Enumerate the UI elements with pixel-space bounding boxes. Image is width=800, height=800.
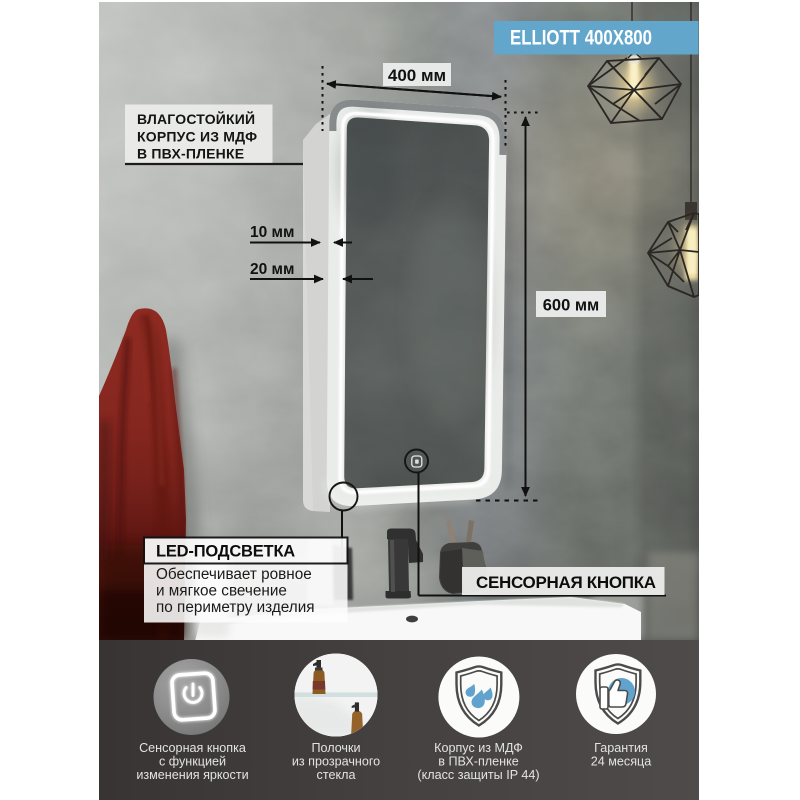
- svg-text:24 месяца: 24 месяца: [591, 755, 652, 769]
- svg-text:в ПВХ-пленке: в ПВХ-пленке: [438, 755, 518, 769]
- svg-text:600 мм: 600 мм: [543, 297, 600, 315]
- svg-text:В ПВХ-ПЛЕНКЕ: В ПВХ-ПЛЕНКЕ: [137, 146, 244, 162]
- svg-text:и мягкое свечение: и мягкое свечение: [156, 583, 287, 600]
- svg-text:Обеспечивает ровное: Обеспечивает ровное: [156, 566, 312, 583]
- svg-text:Полочки: Полочки: [311, 741, 360, 755]
- svg-text:КОРПУС ИЗ МДФ: КОРПУС ИЗ МДФ: [137, 129, 257, 145]
- svg-text:20 мм: 20 мм: [250, 261, 294, 278]
- svg-text:10 мм: 10 мм: [250, 224, 294, 241]
- svg-text:из прозрачного: из прозрачного: [292, 755, 380, 769]
- svg-text:по периметру изделия: по периметру изделия: [156, 599, 315, 616]
- svg-text:с функцией: с функцией: [159, 755, 226, 769]
- svg-text:Сенсорная кнопка: Сенсорная кнопка: [139, 741, 246, 755]
- svg-text:400 мм: 400 мм: [388, 66, 446, 85]
- svg-text:Гарантия: Гарантия: [594, 741, 648, 755]
- svg-text:изменения яркости: изменения яркости: [136, 768, 248, 782]
- svg-text:ВЛАГОСТОЙКИЙ: ВЛАГОСТОЙКИЙ: [137, 110, 255, 127]
- svg-text:Корпус из МДФ: Корпус из МДФ: [434, 741, 523, 755]
- svg-text:стекла: стекла: [317, 768, 356, 782]
- svg-text:LED-ПОДСВЕТКА: LED-ПОДСВЕТКА: [156, 543, 295, 561]
- svg-text:(класс защиты IP 44): (класс защиты IP 44): [417, 768, 539, 782]
- svg-text:ELLIOTT 400X800: ELLIOTT 400X800: [510, 27, 652, 50]
- svg-text:СЕНСОРНАЯ КНОПКА: СЕНСОРНАЯ КНОПКА: [476, 573, 656, 592]
